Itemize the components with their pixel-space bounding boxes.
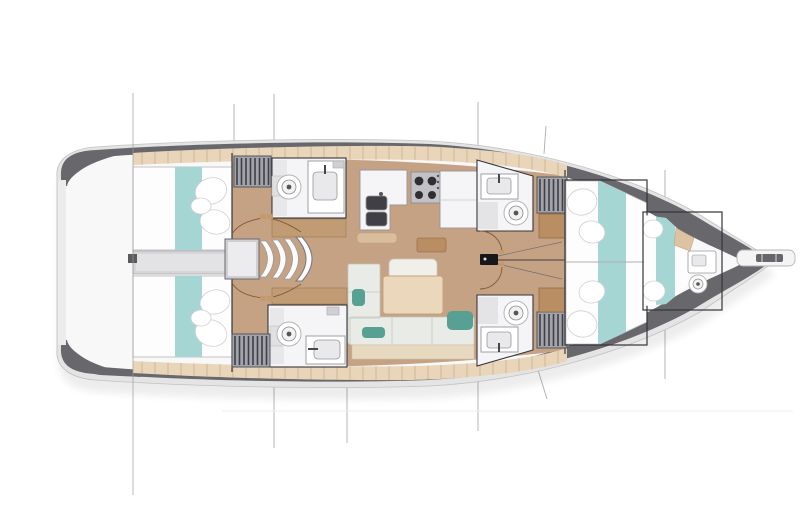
shower-floor xyxy=(478,202,498,229)
aft-head-port xyxy=(272,158,346,218)
toilet xyxy=(504,301,528,325)
aft-corridor xyxy=(128,251,232,274)
washbasin xyxy=(481,174,518,199)
owners-cabin xyxy=(564,180,647,345)
aft-head-starboard xyxy=(268,305,347,367)
washbasin xyxy=(481,327,518,352)
toilet xyxy=(689,275,707,293)
wardrobe xyxy=(537,312,567,348)
cabinet xyxy=(272,288,347,304)
stove xyxy=(411,172,440,203)
wardrobe-body xyxy=(232,334,270,367)
washbasin xyxy=(308,161,344,213)
double-sink xyxy=(366,192,387,226)
anchor-roller xyxy=(756,254,783,262)
toilet xyxy=(277,175,301,199)
transom-platform xyxy=(58,180,66,345)
vent xyxy=(327,307,339,315)
wardrobe xyxy=(537,177,567,213)
galley-ledge xyxy=(357,233,397,243)
yacht-floor-plan xyxy=(0,0,800,505)
bowsprit xyxy=(737,250,795,266)
fridge-counter xyxy=(440,171,478,228)
wardrobe xyxy=(232,334,270,367)
toilet xyxy=(504,201,528,225)
saloon-table xyxy=(383,276,443,314)
wardrobe-body xyxy=(234,156,271,187)
vanity xyxy=(539,214,565,238)
cabinet xyxy=(272,219,346,237)
wardrobe xyxy=(234,156,271,187)
sofa-front xyxy=(352,345,474,359)
shower-floor xyxy=(478,297,498,324)
vent xyxy=(333,161,344,168)
vanity xyxy=(539,288,565,312)
aft-cabin-starboard xyxy=(133,276,232,357)
toilet xyxy=(277,322,301,346)
aft-cabin-port xyxy=(133,167,232,250)
corridor-fitting xyxy=(128,254,137,263)
washbasin xyxy=(688,251,716,273)
sideboard xyxy=(417,238,446,252)
mast-step xyxy=(480,254,498,265)
bed-runner xyxy=(598,181,626,344)
rigging-line xyxy=(544,126,546,154)
washbasin xyxy=(306,336,345,364)
